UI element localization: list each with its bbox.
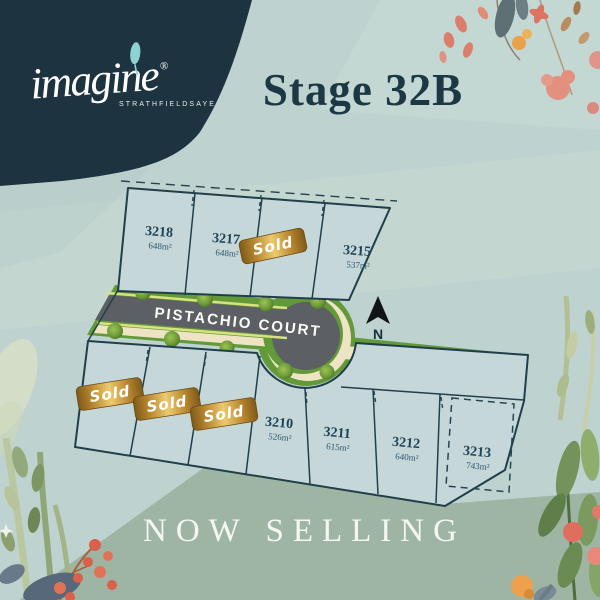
lot-area: 537m² <box>346 259 370 271</box>
flyer-canvas: PISTACHIO COURT <box>0 0 600 600</box>
leaf-icon <box>119 39 151 77</box>
now-selling-banner: NOW SELLING <box>0 513 600 550</box>
lot-area: 648m² <box>215 247 239 259</box>
tree-icon <box>277 363 293 379</box>
lot-number: 3218 <box>145 224 174 241</box>
tree-icon <box>320 365 335 380</box>
lot-number: 3217 <box>212 231 241 248</box>
tree-icon <box>107 323 123 339</box>
lot-area: 615m² <box>326 441 350 453</box>
tree-icon <box>164 331 180 347</box>
registered-mark: ® <box>160 60 169 73</box>
lot-number: 3210 <box>264 415 293 432</box>
north-label: N <box>373 326 383 342</box>
brand-wordmark: imagine® <box>29 49 222 106</box>
lot-number: 3213 <box>462 444 491 461</box>
tree-icon <box>259 297 274 312</box>
brand-logo: imagine® STRATHFIELDSAYE <box>30 56 220 108</box>
lot-area: 648m² <box>148 240 172 252</box>
lot-number: 3215 <box>343 243 372 260</box>
lot-area: 743m² <box>466 460 490 472</box>
north-arrow-icon: N <box>366 296 390 342</box>
lot-area: 526m² <box>268 431 292 443</box>
lot-area: 640m² <box>395 451 419 463</box>
lot-number: 3211 <box>323 425 351 442</box>
page-title: Stage 32B <box>250 64 476 116</box>
lot-number: 3212 <box>391 435 420 452</box>
